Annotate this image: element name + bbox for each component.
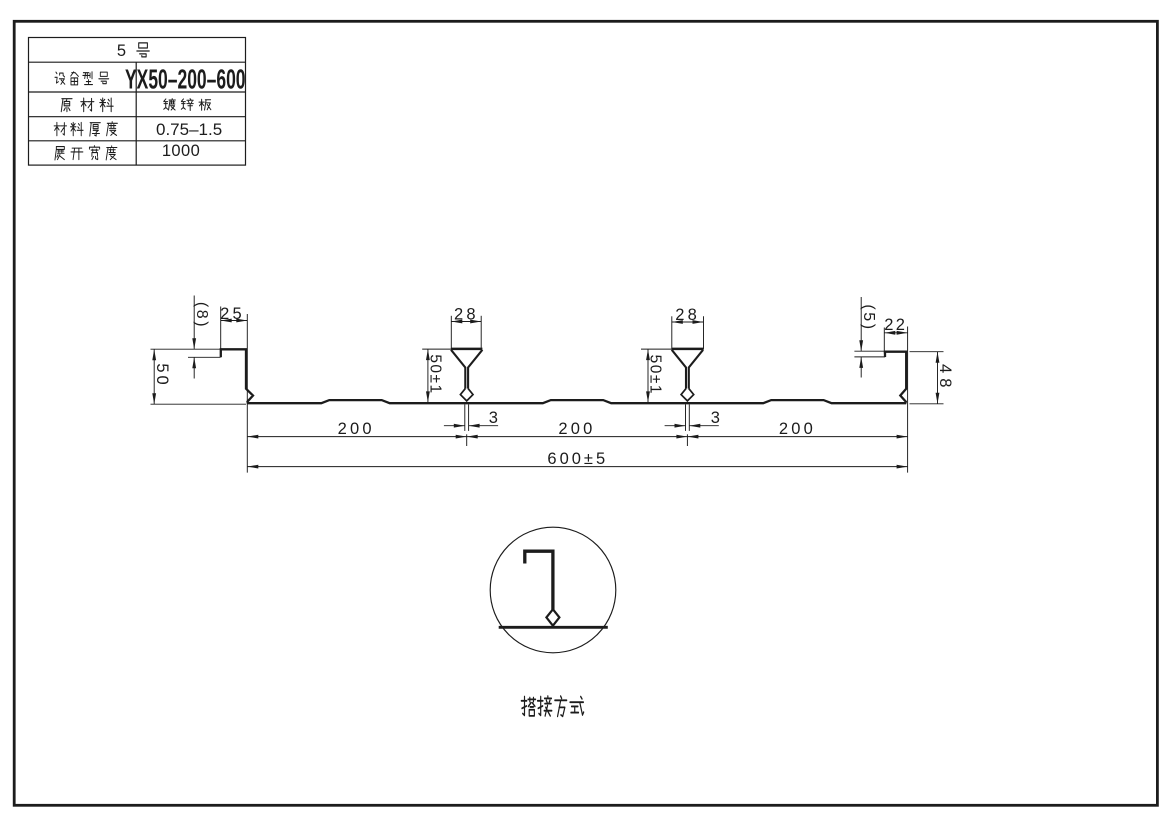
svg-text:28: 28 xyxy=(454,306,479,324)
svg-text:(8): (8) xyxy=(193,302,210,329)
svg-text:YX50–200–600: YX50–200–600 xyxy=(125,63,246,94)
svg-text:0.75–1.5: 0.75–1.5 xyxy=(156,120,222,139)
svg-text:(5): (5) xyxy=(860,304,877,331)
svg-text:3: 3 xyxy=(711,409,720,427)
svg-text:1000: 1000 xyxy=(162,142,200,160)
svg-text:600±5: 600±5 xyxy=(547,450,608,468)
svg-text:50: 50 xyxy=(153,363,171,387)
svg-text:28: 28 xyxy=(675,306,700,324)
svg-text:25: 25 xyxy=(220,305,245,323)
svg-text:5: 5 xyxy=(117,42,126,60)
svg-text:200: 200 xyxy=(558,420,595,438)
svg-text:22: 22 xyxy=(884,316,907,334)
svg-text:48: 48 xyxy=(936,364,954,392)
svg-text:50±1: 50±1 xyxy=(646,355,663,395)
svg-text:200: 200 xyxy=(338,420,375,438)
svg-text:3: 3 xyxy=(489,409,498,427)
svg-text:200: 200 xyxy=(779,420,816,438)
svg-text:50±1: 50±1 xyxy=(426,354,443,394)
